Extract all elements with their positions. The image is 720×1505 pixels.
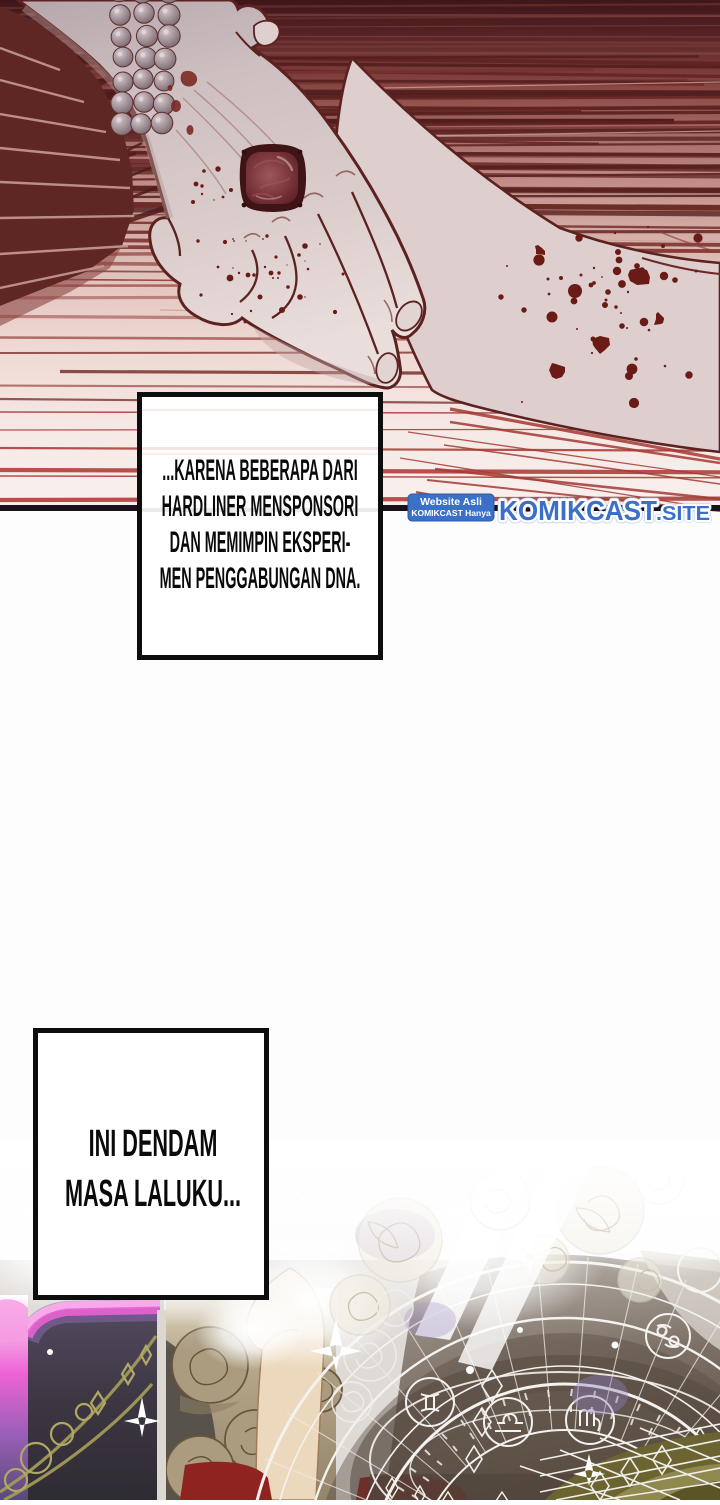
svg-text:.SITE: .SITE: [656, 503, 710, 525]
svg-text:KOMIKCAST: KOMIKCAST: [499, 495, 657, 526]
svg-text:KOMIKCAST Hanya: KOMIKCAST Hanya: [411, 508, 491, 518]
svg-text:Website Asli: Website Asli: [420, 496, 482, 508]
